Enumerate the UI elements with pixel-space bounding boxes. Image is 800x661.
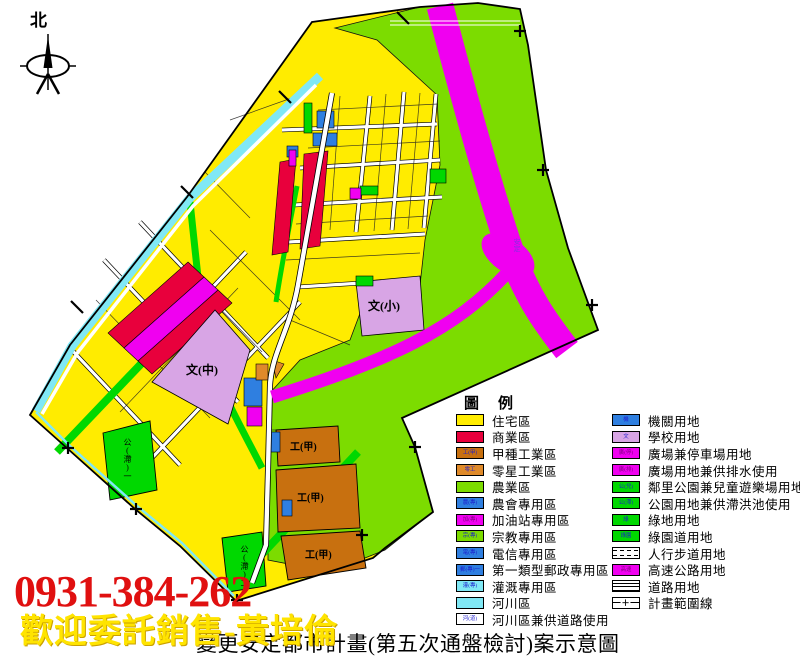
legend-item: 文學校用地 (612, 429, 800, 446)
greenway-swatch: 綠園 (612, 530, 640, 542)
school-swatch: 文 (612, 431, 640, 443)
label-industrial-3: 工(甲) (305, 546, 332, 561)
river-road-swatch: 河(道) (456, 613, 484, 625)
greenland-swatch: 綠 (612, 514, 640, 526)
label-industrial-1: 工(甲) (290, 438, 317, 453)
label-park-1: 公(滯)一 (122, 438, 133, 480)
legend-item: 機機關用地 (612, 412, 800, 429)
label-elementary: 文(小) (368, 297, 400, 314)
road-swatch (612, 580, 640, 592)
park-detention-swatch: 公(滯) (612, 497, 640, 509)
label-junior-high: 文(中) (186, 361, 218, 378)
north-label: 北 (30, 6, 47, 31)
postal-swatch: 郵(專)一 (456, 564, 484, 576)
legend-column-right: 機機關用地 文學校用地 廣(停)廣場兼停車場用地 廣(排)廣場用地兼供排水使用 … (612, 412, 800, 611)
legend-item: 廣(停)廣場兼停車場用地 (612, 445, 800, 462)
legend-item: 綠綠地用地 (612, 512, 800, 529)
river-swatch (456, 597, 484, 609)
legend-item: 高速高速公路用地 (612, 561, 800, 578)
plaza-parking-swatch: 廣(停) (612, 447, 640, 459)
label-industrial-2: 工(甲) (297, 489, 324, 504)
legend-item: 河(道)河川區兼供道路使用 (456, 611, 654, 628)
gas-station-swatch: 加(專) (456, 514, 484, 526)
legend-item: 公(兒)鄰里公園兼兒童遊樂場用地 (612, 478, 800, 495)
neighborhood-park-swatch: 公(兒) (612, 481, 640, 493)
legend-item: ＋計畫範圍線 (612, 595, 800, 612)
legend-item: 公(滯)公園用地兼供滯洪池使用 (612, 495, 800, 512)
legend-item: 道路用地 (612, 578, 800, 595)
label-interchange: 安定 (512, 238, 522, 252)
residential-swatch (456, 414, 484, 426)
government-swatch: 機 (612, 414, 640, 426)
religion-swatch: 宗(專) (456, 530, 484, 542)
plaza-drainage-swatch: 廣(排) (612, 464, 640, 476)
legend-item: 廣(排)廣場用地兼供排水使用 (612, 462, 800, 479)
farmers-assoc-swatch: 農(專) (456, 497, 484, 509)
commercial-swatch (456, 431, 484, 443)
highway-swatch: 高速 (612, 564, 640, 576)
plan-boundary-swatch: ＋ (612, 597, 640, 609)
planning-map-page: 北 文(中) 文(小) 工(甲) 工(甲) 工(甲) 公(滯)一 公(滯)二 安… (0, 0, 800, 661)
legend-item: 綠園綠園道用地 (612, 528, 800, 545)
agriculture-swatch (456, 481, 484, 493)
irrigation-swatch: 灌(專) (456, 580, 484, 592)
promo-text: 歡迎委託銷售-黃培倫 (20, 604, 338, 652)
industrial-a-swatch: 工(甲) (456, 447, 484, 459)
legend-item: 人行步道用地 (612, 545, 800, 562)
scattered-industrial-swatch: 零工 (456, 464, 484, 476)
telecom-swatch: 電(專) (456, 547, 484, 559)
pedestrian-swatch (612, 547, 640, 559)
